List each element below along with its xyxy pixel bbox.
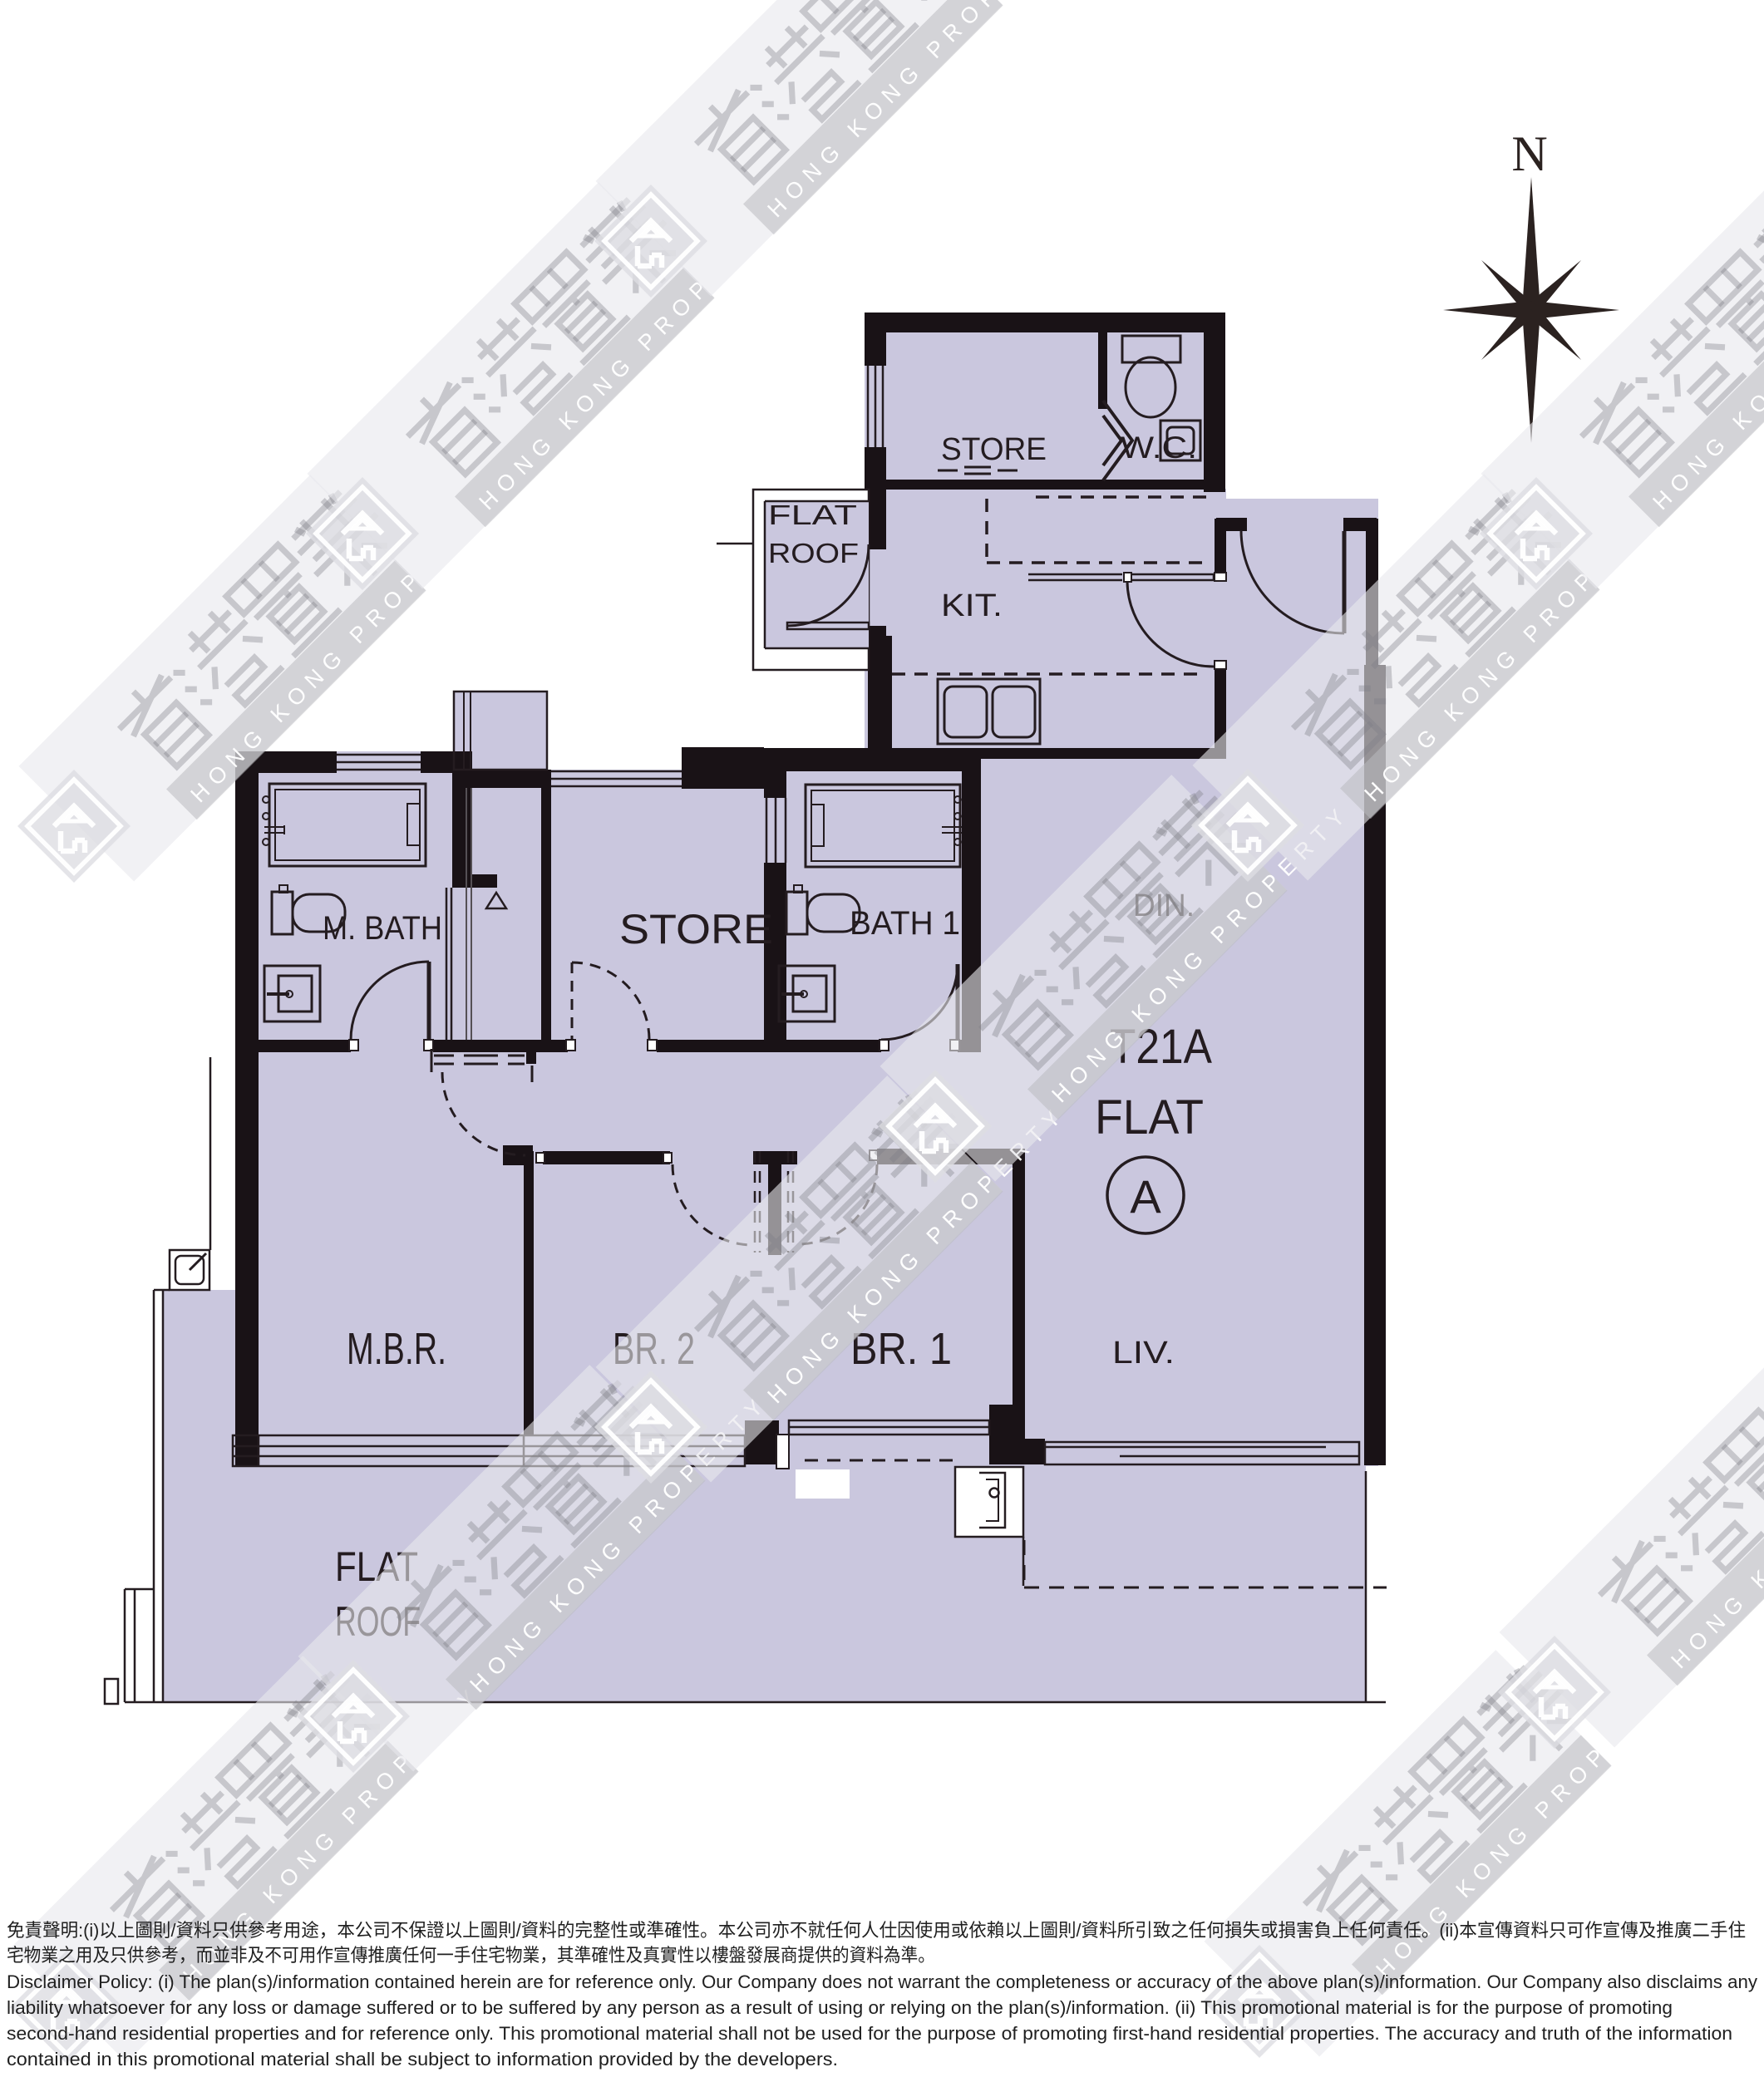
svg-text:liability whatsoever for any l: liability whatsoever for any loss or dam… [7,1997,1673,2018]
svg-text:BR. 1: BR. 1 [850,1324,952,1374]
svg-text:M.B.R.: M.B.R. [347,1324,446,1374]
svg-text:W.C.: W.C. [1121,431,1197,465]
svg-text:BATH 1: BATH 1 [850,905,960,942]
svg-text:ROOF: ROOF [768,538,859,568]
svg-text:FLAT: FLAT [1095,1090,1204,1144]
svg-text:M. BATH: M. BATH [323,910,442,947]
svg-text:A: A [1130,1170,1161,1223]
svg-text:Disclaimer Policy: (i) The pla: Disclaimer Policy: (i) The plan(s)/infor… [7,1971,1758,1992]
svg-text:second-hand residential proper: second-hand residential properties and f… [7,2023,1732,2044]
svg-text:KIT.: KIT. [941,588,1003,623]
svg-text:免責聲明:(i)以上圖則/資料只供參考用途，本公司不保證以上: 免責聲明:(i)以上圖則/資料只供參考用途，本公司不保證以上圖則/資料的完整性或… [7,1920,1746,1941]
svg-text:STORE: STORE [941,432,1047,467]
svg-text:contained in this promotional: contained in this promotional material s… [7,2049,838,2070]
svg-text:STORE: STORE [619,906,773,952]
svg-text:N: N [1511,126,1547,181]
svg-text:宅物業之用及只供參考，而並非及不可用作宣傳推廣任何一手住宅物: 宅物業之用及只供參考，而並非及不可用作宣傳推廣任何一手住宅物業，其準確性及真實性… [7,1945,935,1966]
svg-text:LIV.: LIV. [1112,1336,1175,1371]
svg-text:FLAT: FLAT [768,500,857,530]
